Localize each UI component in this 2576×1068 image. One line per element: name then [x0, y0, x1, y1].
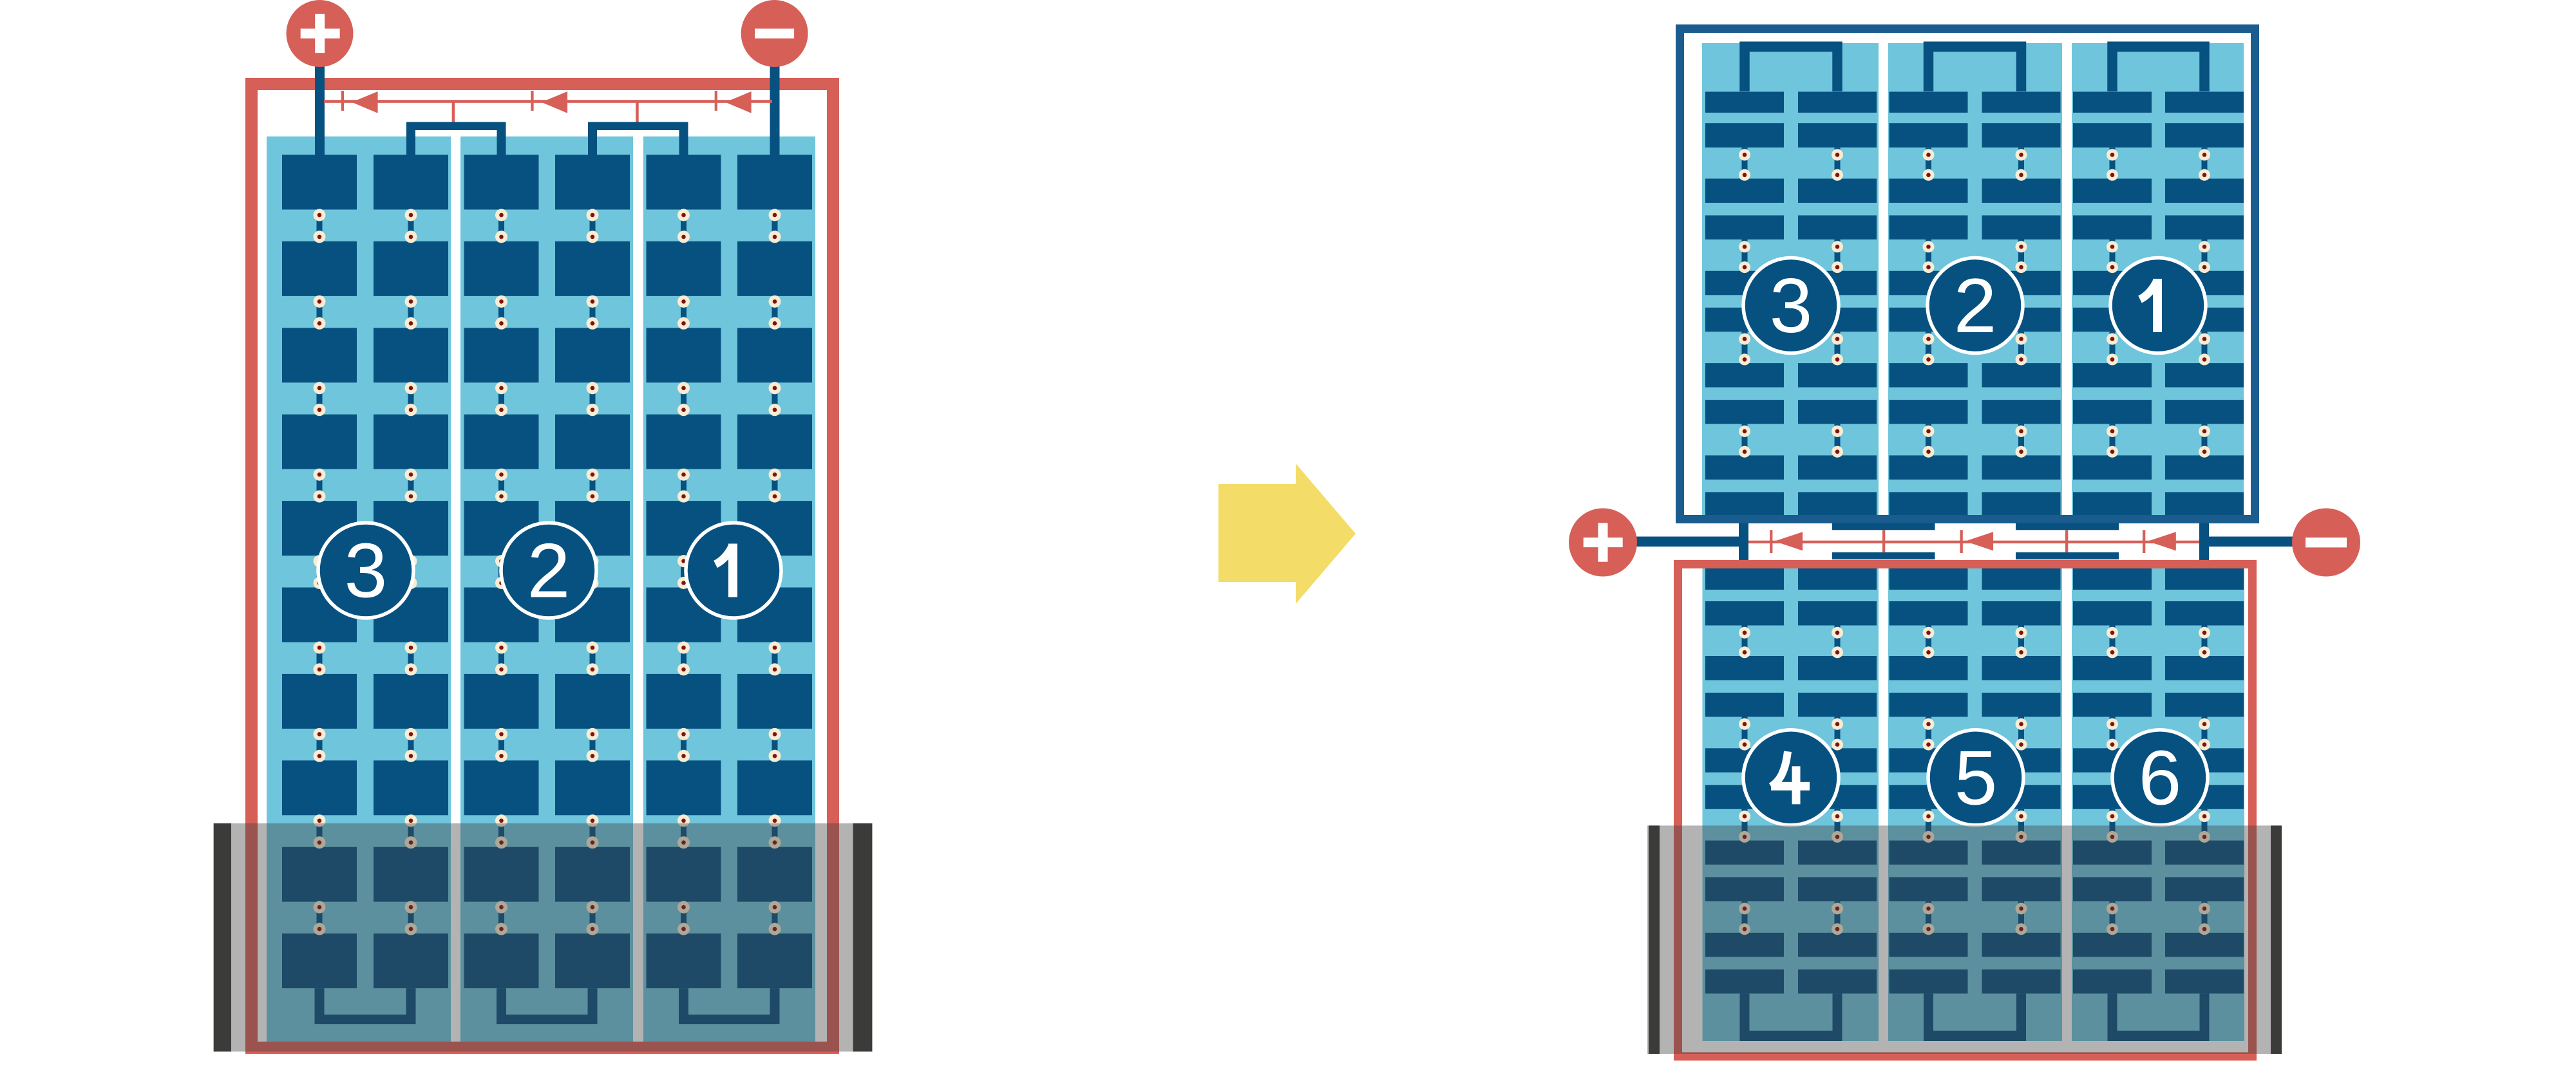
svg-text:3: 3	[345, 528, 388, 614]
svg-text:3: 3	[1770, 263, 1813, 349]
svg-text:2: 2	[527, 528, 571, 614]
svg-text:2: 2	[1954, 263, 1997, 349]
svg-text:5: 5	[1955, 735, 1998, 821]
svg-text:6: 6	[2139, 735, 2182, 821]
